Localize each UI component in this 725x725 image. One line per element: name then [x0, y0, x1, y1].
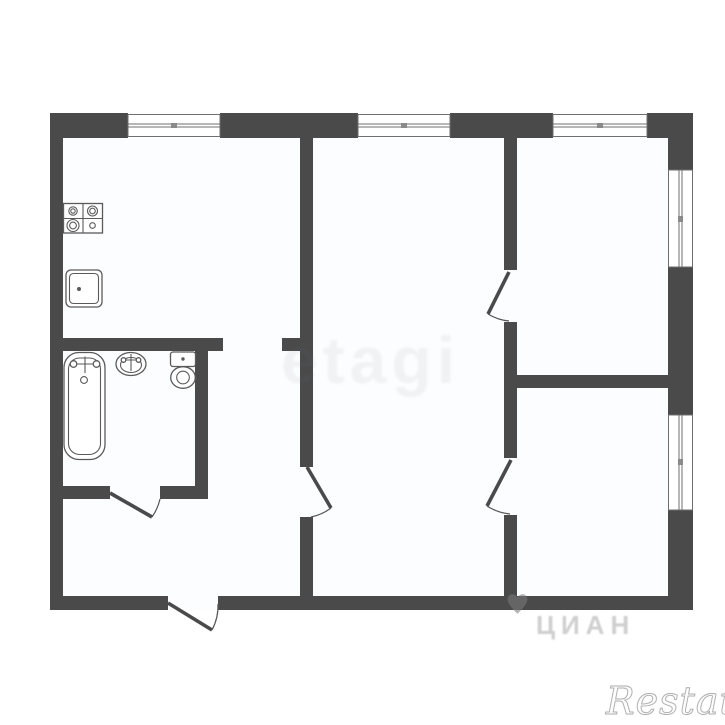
wall-segment: [450, 113, 553, 138]
wall-segment: [218, 596, 693, 610]
wall-segment: [517, 375, 668, 388]
stove-icon: [64, 204, 103, 234]
bathtub-icon: [64, 353, 105, 460]
kitchen-sink-icon: [66, 270, 102, 307]
wall-segment: [63, 338, 223, 351]
wall-segment: [282, 338, 300, 351]
window: [669, 170, 693, 267]
wall-segment: [504, 322, 517, 458]
wall-segment: [668, 113, 693, 170]
window: [669, 415, 693, 510]
floor-plan-canvas: etagi ЦИАН Restate: [0, 0, 725, 725]
wash-basin-icon: [116, 353, 146, 376]
wall-segment: [63, 486, 110, 499]
window: [128, 115, 220, 137]
wall-segment: [668, 267, 693, 415]
room-area: [50, 113, 693, 610]
wall-segment: [50, 113, 63, 610]
wall-segment: [50, 596, 168, 610]
wall-segment: [504, 515, 517, 596]
wall-segment: [195, 351, 208, 498]
wall-segment: [504, 138, 517, 270]
wall-segment: [300, 517, 313, 596]
wall-segment: [300, 138, 313, 467]
wall-segment: [220, 113, 358, 138]
toilet-icon: [171, 352, 196, 388]
window: [553, 115, 647, 137]
window: [358, 115, 450, 137]
wall-segment: [160, 486, 208, 499]
wall-segment: [668, 510, 693, 610]
floor-plan-drawing: [0, 0, 725, 725]
